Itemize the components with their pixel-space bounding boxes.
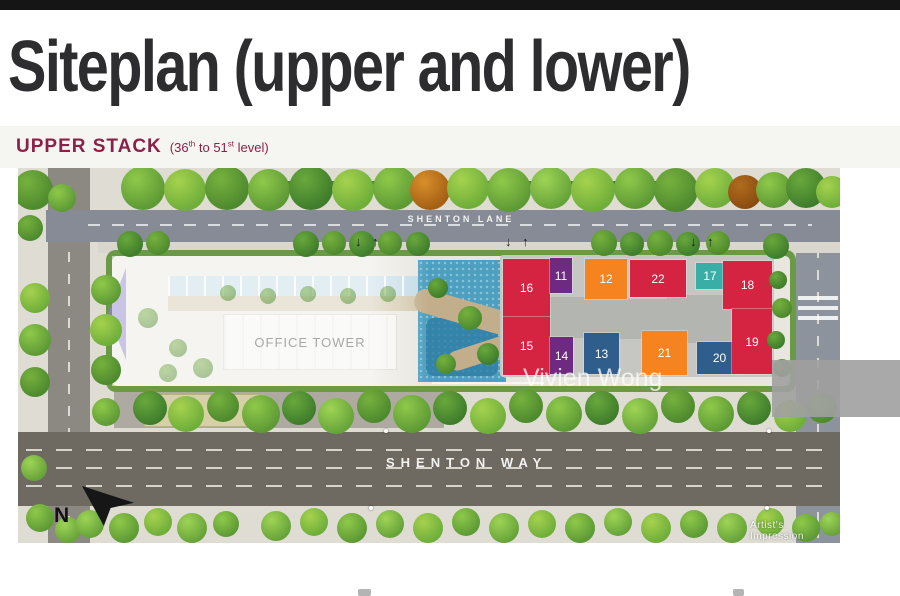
tree [164, 169, 206, 211]
tree [289, 168, 333, 210]
tree [763, 233, 789, 259]
unit-17: 17 [696, 263, 724, 289]
tree [620, 232, 644, 256]
tree [546, 396, 582, 432]
tree [21, 455, 47, 481]
shenton-lane-label: SHENTON LANE [406, 214, 516, 224]
upper-stack-heading: UPPER STACK(36th to 51st level) [16, 136, 269, 158]
tree [242, 395, 280, 433]
tree [487, 168, 531, 212]
tree [248, 169, 290, 211]
traffic-arrow-down-icon: ↓ [690, 234, 697, 249]
tree [737, 391, 771, 425]
tree [322, 231, 346, 255]
traffic-arrow-up-icon: ↑ [372, 234, 379, 249]
tree [816, 176, 840, 208]
tree [213, 511, 239, 537]
tree [20, 367, 50, 397]
tree [433, 391, 467, 425]
tree [18, 215, 43, 241]
tree [261, 511, 291, 541]
upper-stack-title: UPPER STACK [16, 136, 162, 157]
tree [144, 508, 172, 536]
tree [91, 275, 121, 305]
tree [698, 396, 734, 432]
tree [585, 391, 619, 425]
tree [90, 314, 122, 346]
tree [260, 288, 276, 304]
tree [452, 508, 480, 536]
tree [772, 298, 792, 318]
page-title: Siteplan (upper and lower) [8, 30, 760, 105]
cropped-text-mark [733, 589, 744, 596]
tree [109, 513, 139, 543]
tree [654, 168, 698, 212]
upper-stack-range: (36th to 51st level) [170, 140, 269, 155]
traffic-arrow-up-icon: ↑ [707, 234, 714, 249]
tree [380, 286, 396, 302]
tree [717, 513, 747, 543]
unit-22: 22 [630, 260, 686, 297]
tree [406, 232, 430, 256]
tree [591, 230, 617, 256]
tree [332, 169, 374, 211]
tree [282, 391, 316, 425]
tree [447, 168, 489, 209]
tree [436, 354, 456, 374]
tree [26, 504, 54, 532]
tree [604, 508, 632, 536]
tree [458, 306, 482, 330]
street-lamp [767, 429, 771, 433]
tree [470, 398, 506, 434]
tree [428, 278, 448, 298]
artists-impression-label: Artist's Impression [750, 520, 840, 542]
tree [393, 395, 431, 433]
tree [300, 508, 328, 536]
tree [138, 308, 158, 328]
tree [121, 168, 165, 210]
top-black-bar [0, 0, 900, 10]
cropped-text-mark [358, 589, 371, 596]
north-label: N [54, 504, 69, 528]
tree [48, 184, 76, 212]
tree [477, 343, 499, 365]
tree [19, 324, 51, 356]
tree [20, 283, 50, 313]
tree [565, 513, 595, 543]
traffic-arrow-up-icon: ↑ [522, 234, 529, 249]
watermark-agent-name: Vivien Wong [523, 364, 662, 393]
unit-16: 16 [503, 259, 550, 317]
tree [117, 231, 143, 257]
tree [205, 168, 249, 210]
tree [337, 513, 367, 543]
tree [159, 364, 177, 382]
tree [133, 391, 167, 425]
shenton-lane-dash [88, 224, 812, 226]
tree [146, 231, 170, 255]
page: Siteplan (upper and lower) UPPER STACK(3… [0, 0, 900, 596]
tree [647, 230, 673, 256]
tree [318, 398, 354, 434]
tree [614, 168, 656, 209]
tree [641, 513, 671, 543]
tree [680, 510, 708, 538]
unit-19: 19 [732, 309, 772, 374]
tree [622, 398, 658, 434]
tree [767, 331, 785, 349]
tree [769, 271, 787, 289]
tree [530, 168, 572, 209]
traffic-arrow-down-icon: ↓ [505, 234, 512, 249]
street-lamp [369, 506, 373, 510]
tree [376, 510, 404, 538]
tree [571, 168, 615, 212]
tree [220, 285, 236, 301]
traffic-arrow-down-icon: ↓ [355, 234, 362, 249]
tree [489, 513, 519, 543]
watermark-grey-block [772, 360, 900, 417]
siteplan-map: OFFICE TOWER 161511122217181413212019 ↓↑… [18, 168, 840, 543]
tree [413, 513, 443, 543]
street-lamp [384, 429, 388, 433]
tree [300, 286, 316, 302]
tree [293, 231, 319, 257]
unit-12: 12 [585, 259, 627, 299]
tree [193, 358, 213, 378]
shenton-way-label: SHENTON WAY [386, 455, 546, 470]
street-lamp [765, 506, 769, 510]
tree [661, 389, 695, 423]
tree [168, 396, 204, 432]
tree [410, 170, 450, 210]
tree [207, 390, 239, 422]
shenton-way-dash-1 [26, 449, 832, 451]
faded-overlay [112, 256, 428, 386]
tree [378, 231, 402, 255]
crosswalk [798, 296, 838, 320]
tree [169, 339, 187, 357]
unit-18: 18 [723, 261, 772, 309]
tree [509, 389, 543, 423]
tree [92, 398, 120, 426]
shenton-way-dash-3 [26, 485, 832, 487]
tree [528, 510, 556, 538]
tree [91, 355, 121, 385]
tree [340, 288, 356, 304]
tree [177, 513, 207, 543]
unit-11: 11 [550, 258, 572, 293]
tree [357, 389, 391, 423]
